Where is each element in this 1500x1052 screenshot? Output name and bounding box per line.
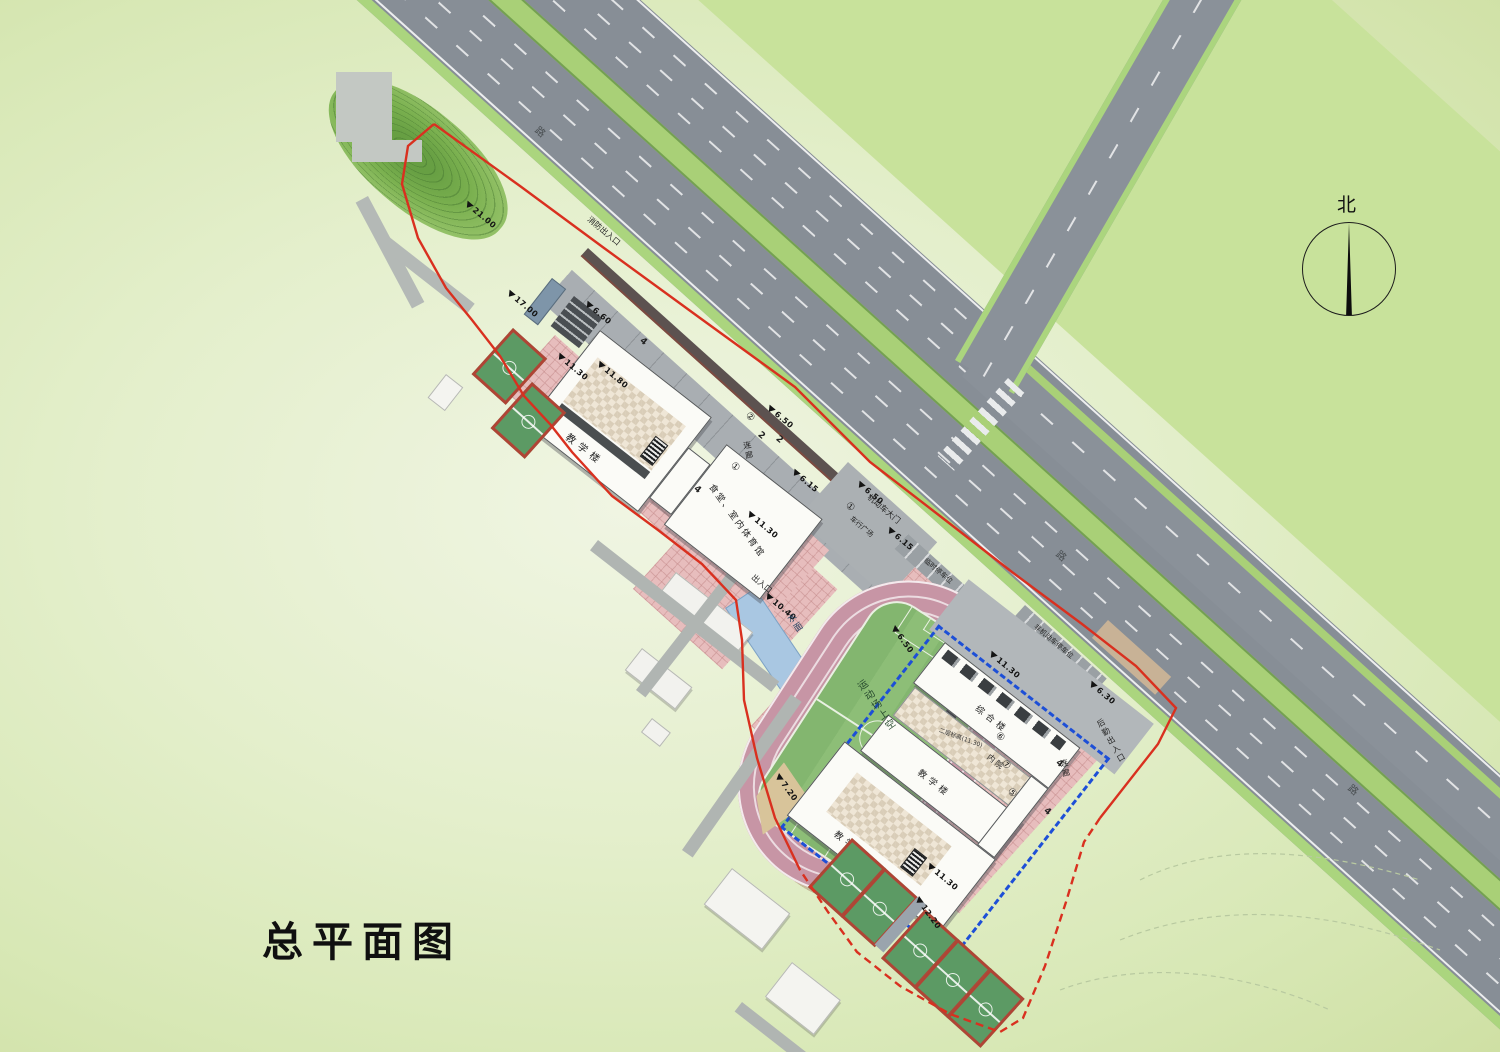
existing-building [641,718,671,747]
boundary-trees [1069,756,1169,854]
north-compass [1302,222,1396,316]
north-label: 北 [1337,190,1356,217]
existing-building [428,374,464,411]
site-plan-canvas: 教学楼 食堂、室内体育馆 综合楼 内院 二层标高(11.30) 教学楼 教学楼 [0,0,1500,1052]
existing-building [765,962,841,1035]
compass-needle [1340,223,1358,315]
terrain-contour [1060,973,1330,1010]
floor-count: 2 [774,434,785,446]
page-title: 总平面图 [262,908,462,968]
building-label: 教学楼 [915,766,954,800]
